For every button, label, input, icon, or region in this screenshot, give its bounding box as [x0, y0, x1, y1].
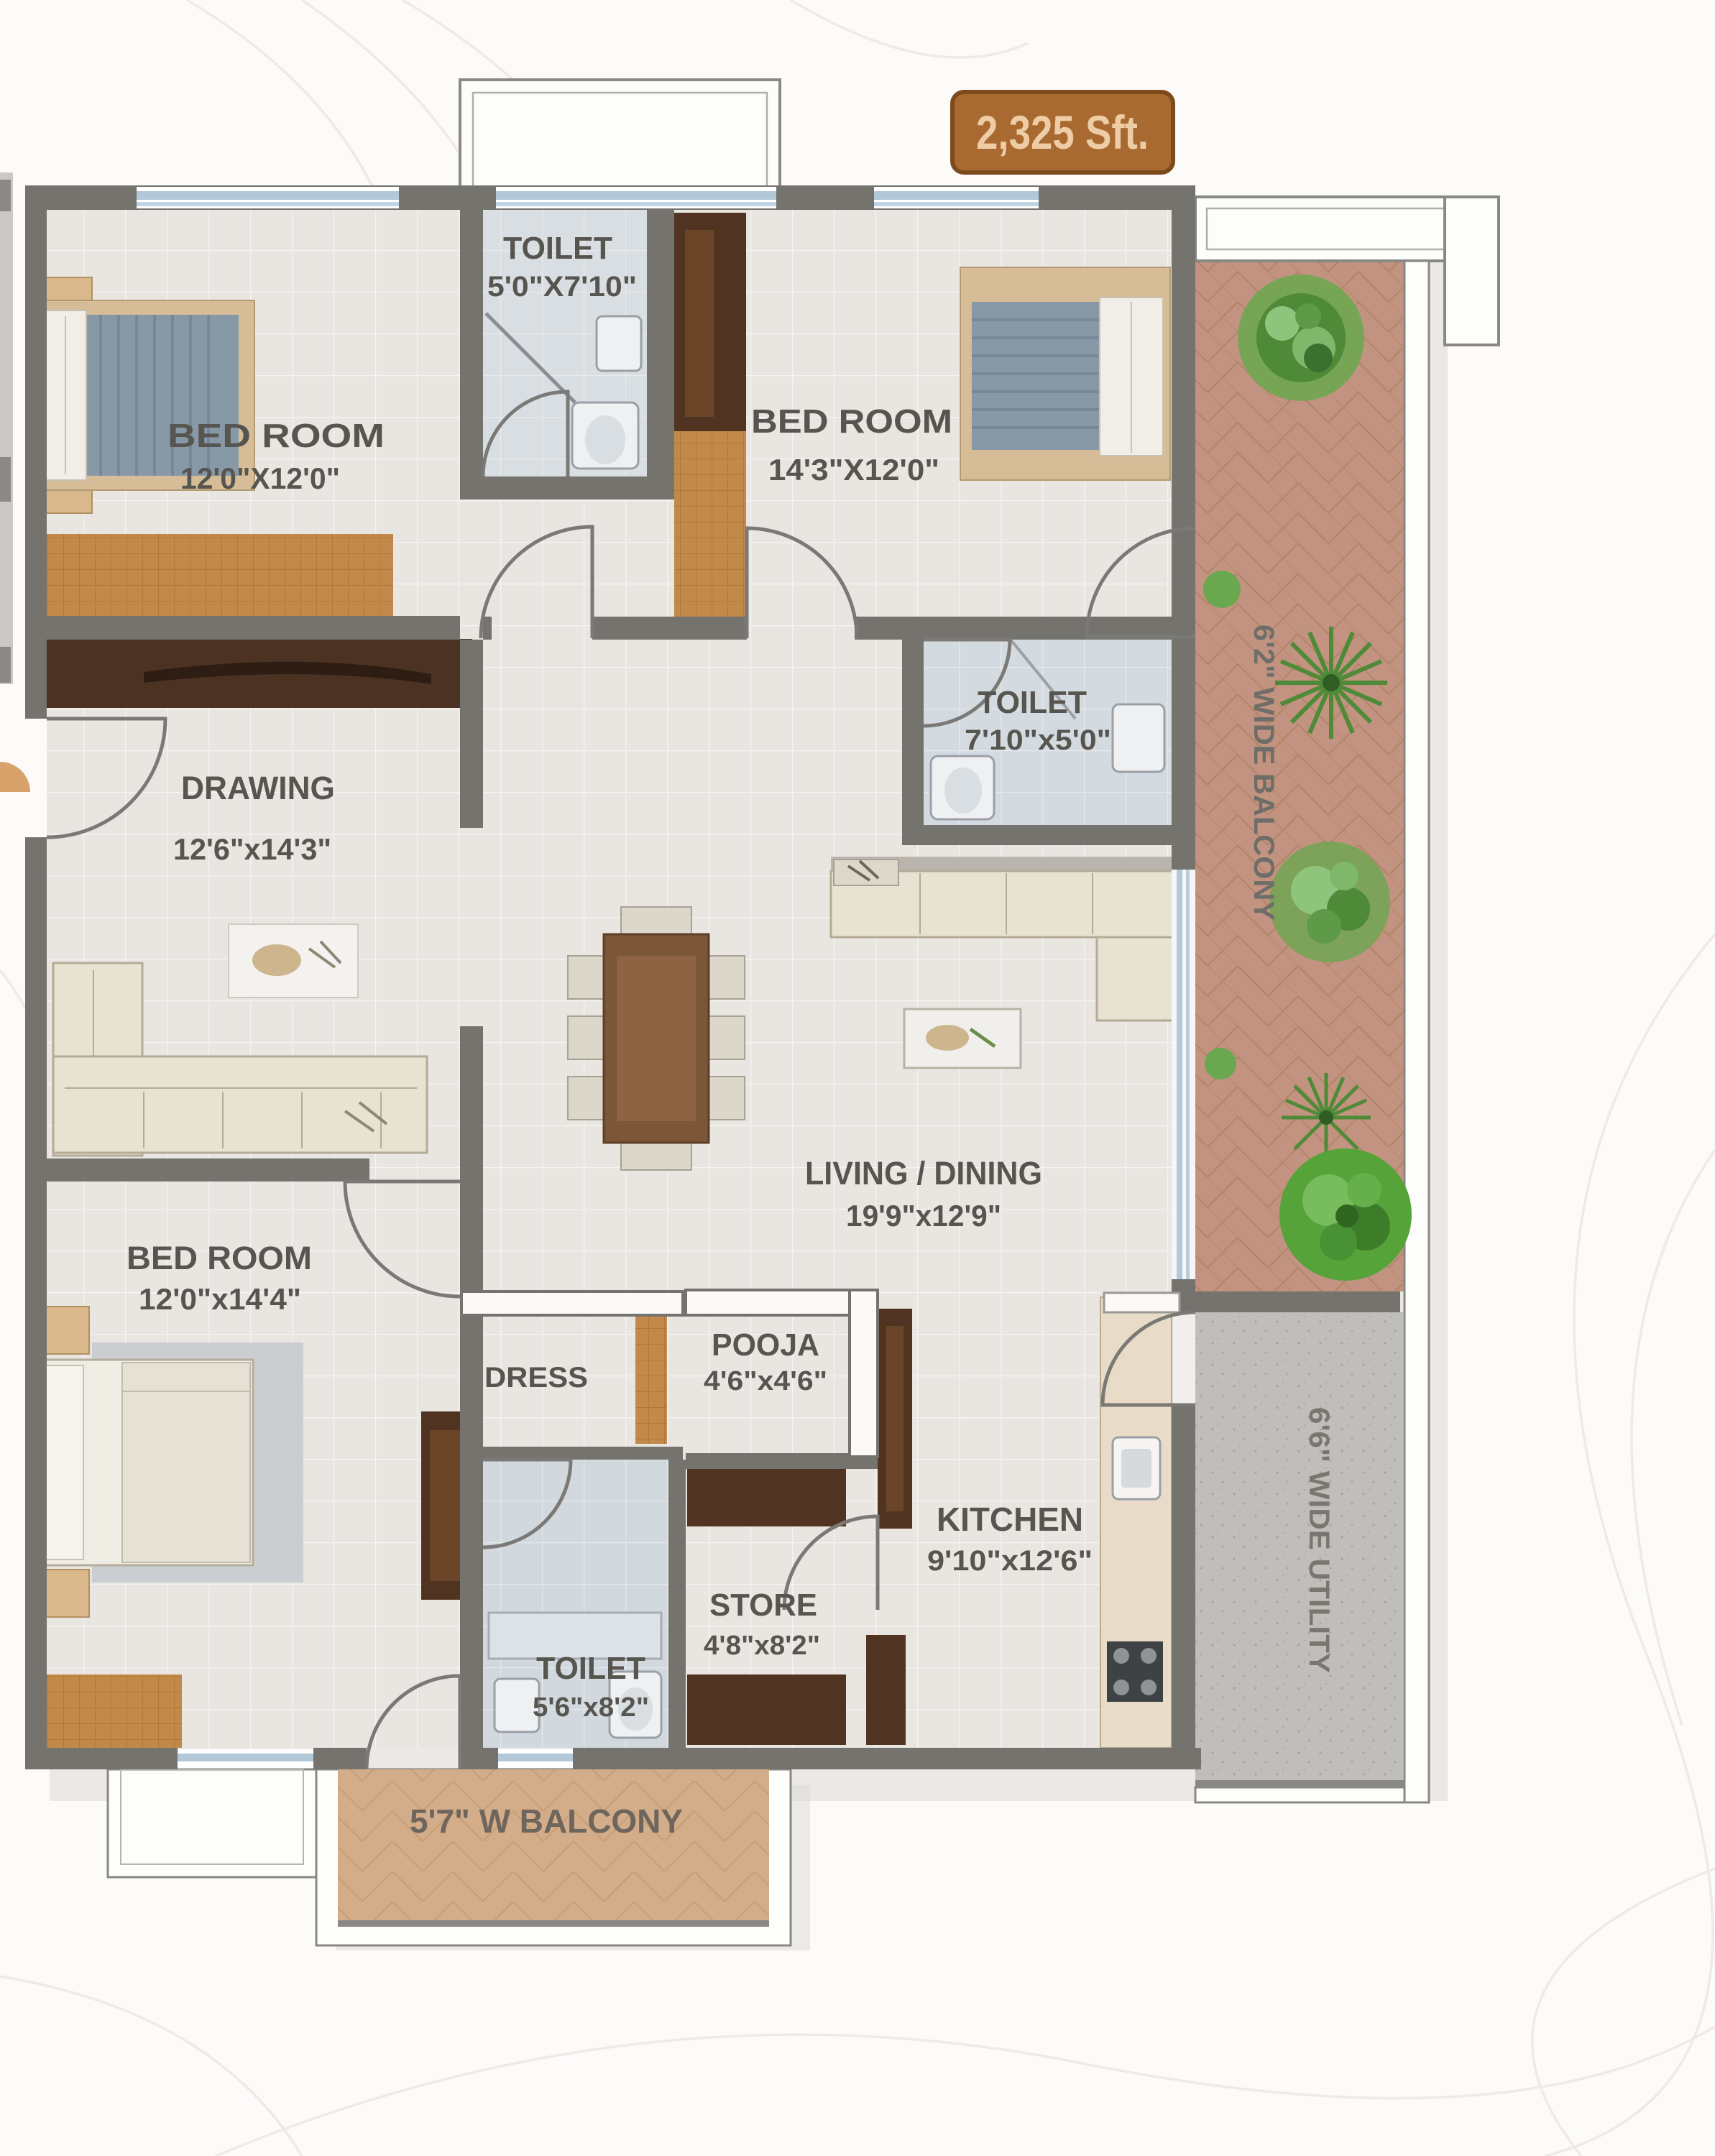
svg-text:KITCHEN: KITCHEN [937, 1501, 1083, 1538]
svg-text:TOILET: TOILET [503, 231, 612, 266]
svg-text:4'6"x4'6": 4'6"x4'6" [704, 1366, 827, 1396]
svg-text:BED ROOM: BED ROOM [127, 1240, 312, 1276]
svg-text:4'8"x8'2": 4'8"x8'2" [704, 1631, 820, 1661]
svg-text:19'9"x12'9": 19'9"x12'9" [846, 1199, 1001, 1233]
svg-text:12'6"x14'3": 12'6"x14'3" [173, 832, 331, 866]
svg-text:STORE: STORE [709, 1588, 817, 1623]
svg-text:TOILET: TOILET [978, 685, 1087, 720]
svg-text:LIVING / DINING: LIVING / DINING [805, 1155, 1042, 1192]
svg-text:POOJA: POOJA [712, 1327, 819, 1363]
svg-text:DRAWING: DRAWING [181, 770, 335, 806]
svg-text:5'6"x8'2": 5'6"x8'2" [533, 1692, 649, 1723]
svg-text:BED ROOM: BED ROOM [751, 402, 952, 440]
svg-text:14'3"X12'0": 14'3"X12'0" [768, 453, 939, 487]
svg-text:7'10"x5'0": 7'10"x5'0" [965, 724, 1111, 756]
svg-text:5'7" W BALCONY: 5'7" W BALCONY [410, 1802, 683, 1840]
svg-text:9'10"x12'6": 9'10"x12'6" [927, 1545, 1093, 1577]
svg-text:DRESS: DRESS [484, 1362, 588, 1393]
svg-text:12'0"X12'0": 12'0"X12'0" [180, 461, 340, 495]
svg-text:2,325 Sft.: 2,325 Sft. [976, 106, 1149, 159]
svg-text:12'0"x14'4": 12'0"x14'4" [139, 1282, 301, 1316]
svg-text:6'6" WIDE UTILITY: 6'6" WIDE UTILITY [1303, 1407, 1335, 1673]
svg-text:6'2" WIDE BALCONY: 6'2" WIDE BALCONY [1248, 625, 1279, 921]
svg-text:BED ROOM: BED ROOM [167, 417, 385, 454]
svg-text:TOILET: TOILET [536, 1651, 645, 1686]
svg-text:5'0"X7'10": 5'0"X7'10" [487, 271, 637, 303]
